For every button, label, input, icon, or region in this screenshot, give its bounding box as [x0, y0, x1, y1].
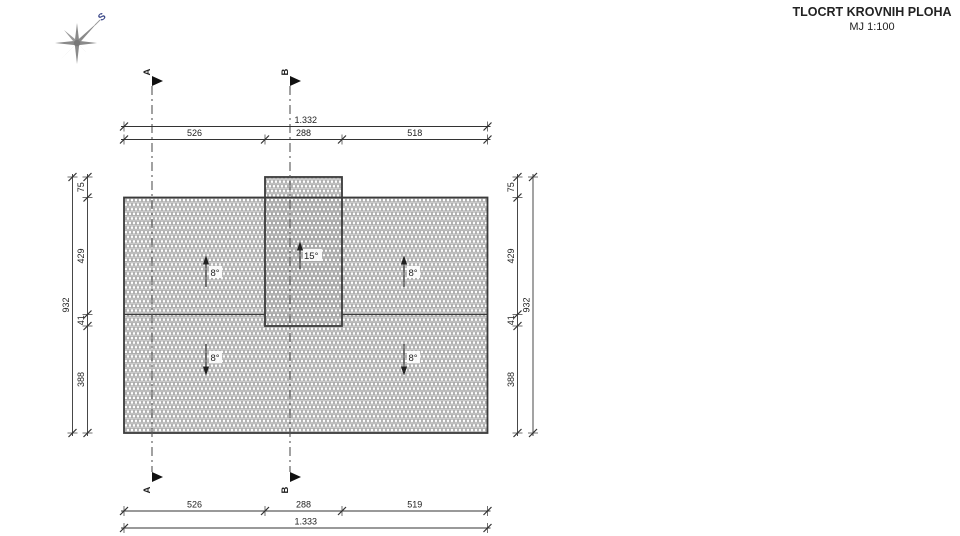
section-label-b-top: B — [280, 68, 291, 75]
dimension-right: 75 429 41 388 932 — [506, 173, 538, 437]
dim-right-seg-3: 41 — [506, 315, 516, 325]
dim-left-seg-4: 388 — [76, 372, 86, 387]
north-compass: S — [55, 11, 109, 64]
roof-plan-drawing: TLOCRT KROVNIH PLOHA MJ 1:100 S — [0, 0, 960, 536]
dim-bottom-seg-3: 519 — [407, 500, 422, 510]
slope-label-upper-left: 8° — [211, 268, 220, 279]
dimension-bottom: 526 288 519 1.333 — [120, 500, 492, 534]
dim-top-seg-2: 288 — [296, 128, 311, 138]
dim-left-seg-3: 41 — [76, 315, 86, 325]
dim-left-total: 932 — [61, 297, 71, 312]
section-flag-a-top — [152, 76, 163, 86]
page-title: TLOCRT KROVNIH PLOHA — [792, 5, 951, 19]
dim-right-total: 932 — [522, 297, 532, 312]
slope-label-lower-left: 8° — [211, 353, 220, 364]
dim-top-seg-3: 518 — [407, 128, 422, 138]
dim-bottom-total: 1.333 — [294, 517, 317, 527]
section-label-a-bottom: A — [142, 486, 153, 493]
dim-right-seg-2: 429 — [506, 248, 516, 263]
dim-bottom-seg-1: 526 — [187, 500, 202, 510]
dim-right-seg-1: 75 — [506, 182, 516, 192]
dim-top-total: 1.332 — [294, 115, 317, 125]
dim-right-seg-4: 388 — [506, 372, 516, 387]
dim-top-seg-1: 526 — [187, 128, 202, 138]
section-label-b-bottom: B — [280, 486, 291, 493]
section-flag-b-bottom — [290, 472, 301, 482]
dim-left-seg-2: 429 — [76, 248, 86, 263]
north-star-icon — [55, 20, 100, 64]
section-label-a-top: A — [142, 68, 153, 75]
roof-plan — [124, 177, 488, 433]
section-flag-a-bottom — [152, 472, 163, 482]
scale-label: MJ 1:100 — [849, 21, 894, 33]
section-flag-b-top — [290, 76, 301, 86]
dim-bottom-seg-2: 288 — [296, 500, 311, 510]
slope-label-tower: 15° — [304, 251, 319, 262]
drawing-sheet: TLOCRT KROVNIH PLOHA MJ 1:100 S — [0, 0, 960, 536]
slope-label-upper-right: 8° — [409, 268, 418, 279]
dim-left-seg-1: 75 — [76, 182, 86, 192]
dimension-left: 932 75 429 41 388 — [61, 173, 93, 437]
title-block: TLOCRT KROVNIH PLOHA MJ 1:100 — [792, 5, 951, 33]
slope-label-lower-right: 8° — [409, 353, 418, 364]
dimension-top: 1.332 526 288 518 — [120, 115, 492, 145]
